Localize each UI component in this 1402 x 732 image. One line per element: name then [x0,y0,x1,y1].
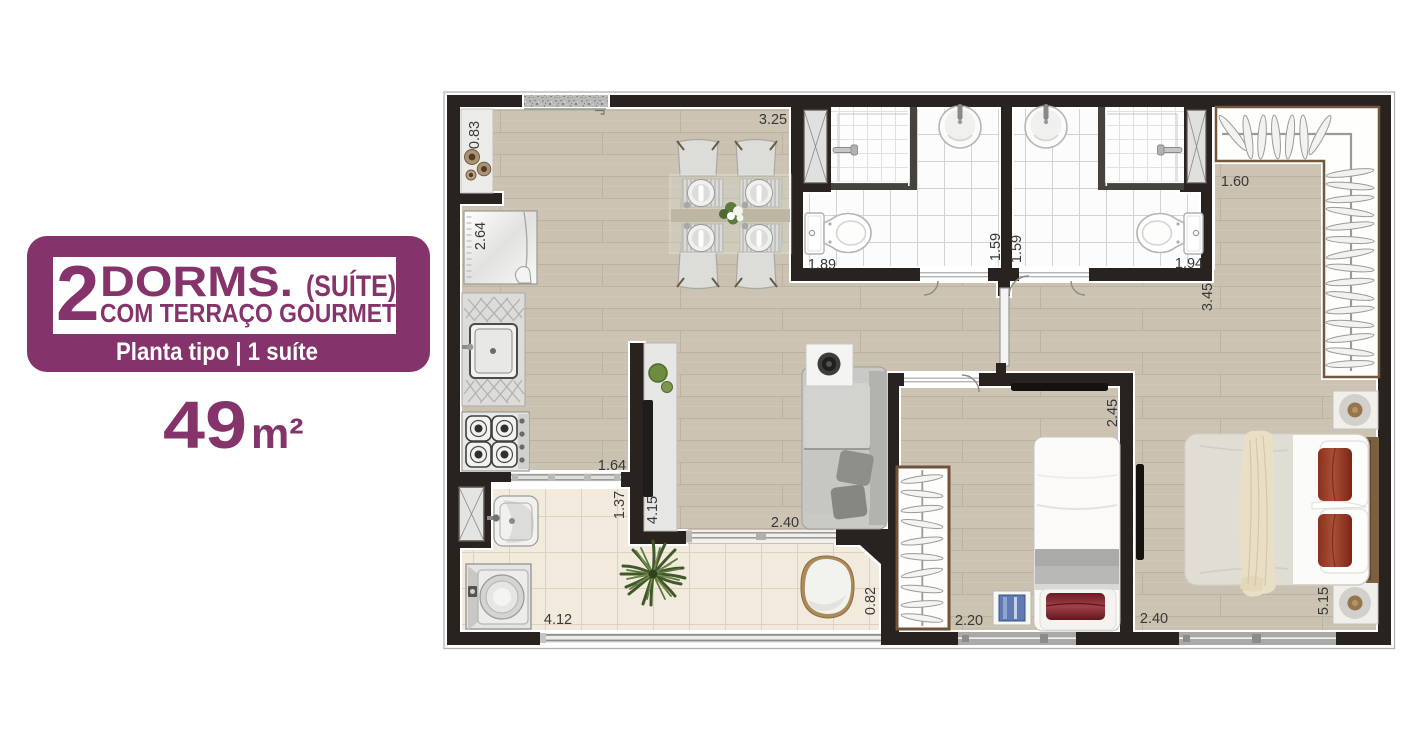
svg-text:1.37: 1.37 [612,491,628,519]
svg-text:1.59: 1.59 [988,233,1004,261]
svg-text:2.64: 2.64 [473,222,489,250]
svg-text:2.40: 2.40 [771,515,799,531]
svg-text:3.25: 3.25 [759,112,787,128]
svg-text:1.60: 1.60 [1221,174,1249,190]
svg-text:1.59: 1.59 [1009,235,1025,263]
svg-text:m²: m² [251,410,304,458]
svg-text:1.89: 1.89 [808,257,836,273]
svg-text:2.45: 2.45 [1105,399,1121,427]
svg-text:2: 2 [56,249,99,337]
svg-text:4.12: 4.12 [544,612,572,628]
svg-text:0.83: 0.83 [467,121,483,149]
svg-text:49: 49 [163,388,247,463]
svg-text:2.40: 2.40 [1140,611,1168,627]
svg-text:2.20: 2.20 [955,613,983,629]
svg-text:5.15: 5.15 [1316,587,1332,615]
svg-text:1.64: 1.64 [598,458,626,474]
svg-text:0.82: 0.82 [863,587,879,615]
svg-text:3.45: 3.45 [1200,283,1216,311]
svg-text:1.94: 1.94 [1175,256,1203,272]
svg-text:4.15: 4.15 [645,496,661,524]
svg-text:Planta tipo | 1 suíte: Planta tipo | 1 suíte [116,338,318,366]
svg-text:COM TERRAÇO GOURMET: COM TERRAÇO GOURMET [100,298,396,328]
